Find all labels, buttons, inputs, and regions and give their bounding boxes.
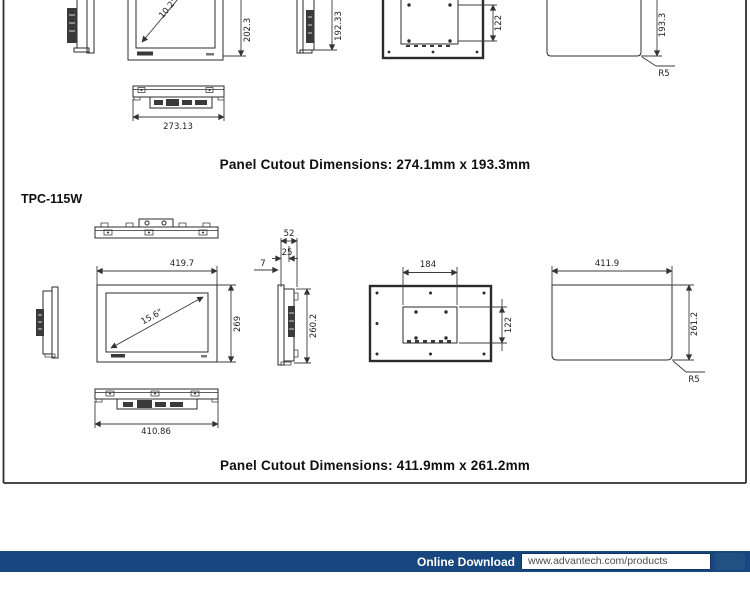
section1-rear-view xyxy=(383,0,483,58)
tpc115w-cutout-heading: Panel Cutout Dimensions: 411.9mm x 261.2… xyxy=(0,458,750,473)
section1-bottom-view xyxy=(133,86,224,108)
dim-202-3: 202.3 xyxy=(243,18,253,42)
footer-bar: Online Download www.advantech.com/produc… xyxy=(0,551,750,572)
section1-cutout-heading: Panel Cutout Dimensions: 274.1mm x 193.3… xyxy=(0,157,750,172)
tpc115w-dim-depth-front: 25 xyxy=(272,246,298,262)
section1-dim-side-height: 192.33 xyxy=(314,0,344,50)
diagonal-size-label-1: 10.2" xyxy=(157,0,179,21)
dim-193-3: 193.3 xyxy=(658,13,668,37)
section1-front-view: 10.2" xyxy=(128,0,223,60)
tpc115w-front-view: 15.6" xyxy=(97,285,217,362)
diagonal-size-label-2: 15.6" xyxy=(140,307,165,327)
dim-261-2: 261.2 xyxy=(690,312,700,336)
tpc115w-dim-front-height: 269 xyxy=(217,285,243,362)
online-download-label: Online Download xyxy=(417,555,515,569)
tpc115w-dim-front-width: 419.7 xyxy=(97,259,217,285)
dim-122-s2: 122 xyxy=(504,317,514,333)
dim-122-s1: 122 xyxy=(494,15,504,31)
dim-52: 52 xyxy=(284,229,295,239)
dim-269: 269 xyxy=(233,316,243,332)
dim-273-13: 273.13 xyxy=(163,122,193,132)
section1-side-view-right xyxy=(297,0,314,53)
tpc115w-title: TPC-115W xyxy=(21,192,82,206)
dim-192-33: 192.33 xyxy=(334,11,344,41)
datasheet-page: 10.2" 202.3 192.33 xyxy=(0,0,750,591)
tpc115w-cutout-drawing: 411.9 261.2 R5 xyxy=(552,259,705,385)
footer-accent-block xyxy=(715,553,745,570)
tpc115w-side-view-mid xyxy=(278,285,298,365)
page-border xyxy=(4,0,747,483)
corner-radius-label-s1: R5 xyxy=(658,69,669,79)
dimension-drawings: 10.2" 202.3 192.33 xyxy=(0,0,750,484)
tpc115w-dim-vesa-height: 122 xyxy=(459,299,514,351)
tpc115w-rear-view xyxy=(370,286,491,361)
dim-25: 25 xyxy=(282,248,293,258)
section1-side-view-left xyxy=(67,0,94,53)
tpc115w-side-view-left xyxy=(36,287,58,358)
dim-7: 7 xyxy=(260,259,265,269)
section1-dim-vesa-height: 122 xyxy=(458,5,504,41)
dim-411-9: 411.9 xyxy=(595,259,619,269)
tpc115w-dim-vesa-width: 184 xyxy=(403,260,457,305)
dim-184: 184 xyxy=(420,260,436,270)
dim-410-86: 410.86 xyxy=(141,427,171,437)
tpc115w-top-view xyxy=(95,219,218,238)
download-url[interactable]: www.advantech.com/products xyxy=(521,553,711,570)
section1-dim-front-height: 202.3 xyxy=(223,0,253,56)
dim-260-2: 260.2 xyxy=(309,314,319,338)
tpc115w-bottom-view xyxy=(95,389,218,409)
tpc115w-dim-depth-bezel: 7 xyxy=(254,259,278,270)
section1-cutout-drawing: 193.3 R5 xyxy=(547,0,675,79)
corner-radius-label-s2: R5 xyxy=(688,375,699,385)
dim-419-7: 419.7 xyxy=(170,259,194,269)
